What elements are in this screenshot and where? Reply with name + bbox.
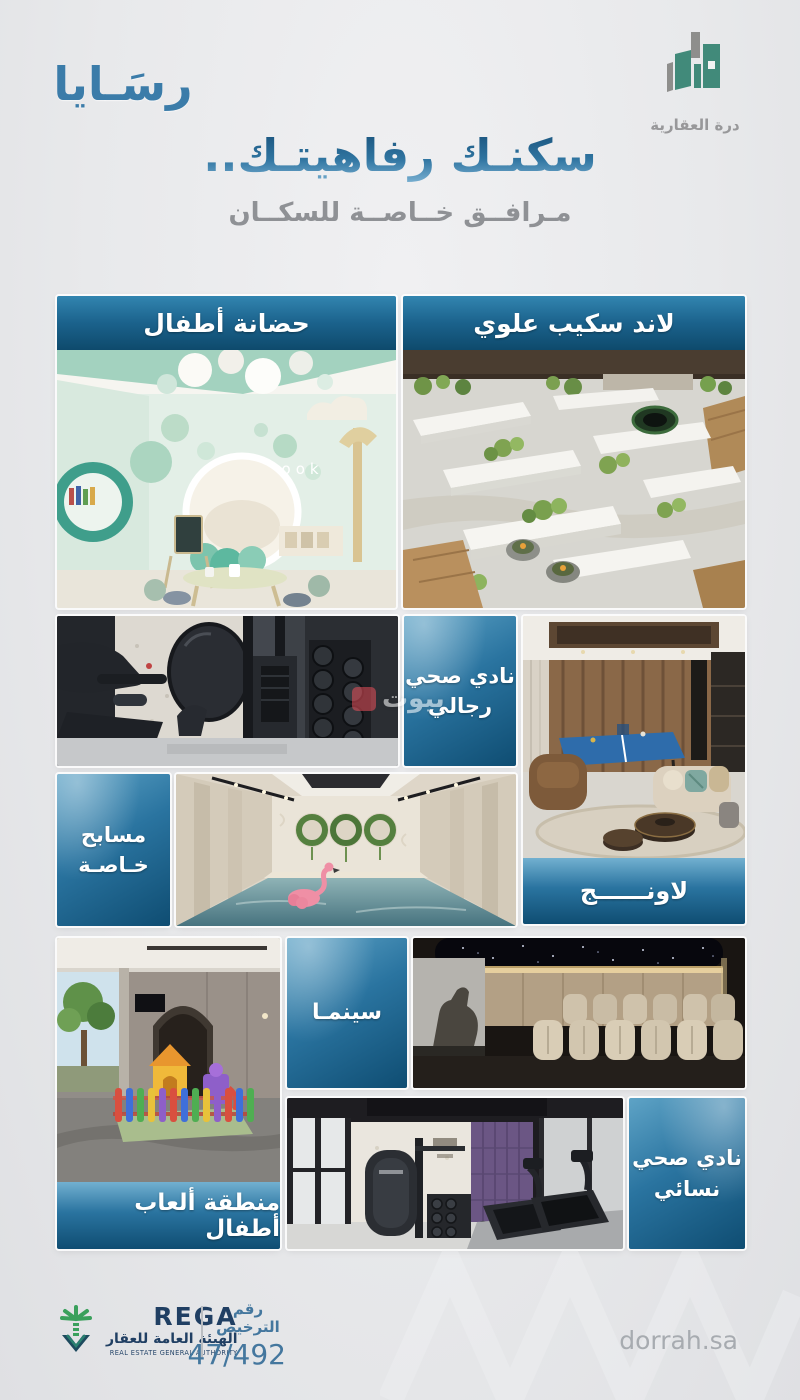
kids-play-area-photo	[57, 938, 280, 1182]
mens-gym-label-line1: نادي صحي	[405, 663, 515, 689]
mens-gym-photo	[57, 616, 398, 766]
card-lounge: لاونــــــج	[523, 616, 745, 924]
license-number: 47/492	[210, 1338, 286, 1371]
pools-label: مسابح خـاصـة	[57, 774, 170, 926]
cinema-photo	[413, 938, 745, 1088]
mens-gym-label: نادي صحي رجالي	[404, 616, 516, 766]
rasaya-logo: رسَـايا	[48, 38, 198, 130]
rega-palm-icon	[54, 1303, 98, 1357]
website-url: dorrah.sa	[619, 1326, 738, 1355]
hero: سكنـك رفاهيتـك.. مـرافــق خــاصــة للسكـ…	[0, 128, 800, 228]
cinema-label-text: سينمـا	[312, 999, 382, 1027]
womens-gym-photo-block	[287, 1098, 623, 1249]
poster: رسَـايا درة العقارية سكنـك رفاهيتـك.. مـ…	[0, 0, 800, 1400]
card-nursery-label: حضانة أطفال	[57, 296, 396, 350]
dorrah-logo-icon	[666, 91, 724, 110]
hero-subtitle: مـرافــق خــاصــة للسكــان	[0, 198, 800, 228]
card-kids-play-area: منطقة ألعاب أطفال	[57, 938, 280, 1249]
license-label: رقم الترخيص	[210, 1300, 286, 1336]
womens-gym-photo	[287, 1098, 623, 1249]
cinema-photo-block	[413, 938, 745, 1088]
pools-photo-block	[176, 774, 516, 926]
license-block: رقم الترخيص 47/492	[210, 1300, 286, 1371]
pools-photo	[176, 774, 516, 926]
card-nursery: حضانة أطفال book	[57, 296, 396, 608]
card-landscape-label: لاند سكيب علوي	[403, 296, 745, 350]
womens-gym-label-line1: نادي صحي	[632, 1145, 742, 1171]
womens-gym-label: نادي صحي نسائي	[629, 1098, 745, 1249]
landscape-photo	[403, 350, 745, 608]
lounge-label: لاونــــــج	[523, 858, 745, 924]
nursery-photo: book	[57, 350, 396, 608]
card-landscape: لاند سكيب علوي	[403, 296, 745, 608]
pools-label-line1: مسابح	[81, 822, 146, 848]
background-zigzag-watermark	[380, 1250, 800, 1400]
cinema-label: سينمـا	[287, 938, 407, 1088]
pools-label-line2: خـاصـة	[78, 852, 148, 878]
lounge-photo	[523, 616, 745, 858]
dorrah-logo: درة العقارية	[640, 32, 750, 134]
kids-play-area-label: منطقة ألعاب أطفال	[57, 1182, 280, 1249]
mens-gym-label-line2: رجالي	[428, 693, 492, 719]
womens-gym-label-line2: نسائي	[654, 1176, 720, 1202]
mens-gym-photo-block	[57, 616, 398, 766]
hero-title: سكنـك رفاهيتـك..	[0, 128, 800, 184]
